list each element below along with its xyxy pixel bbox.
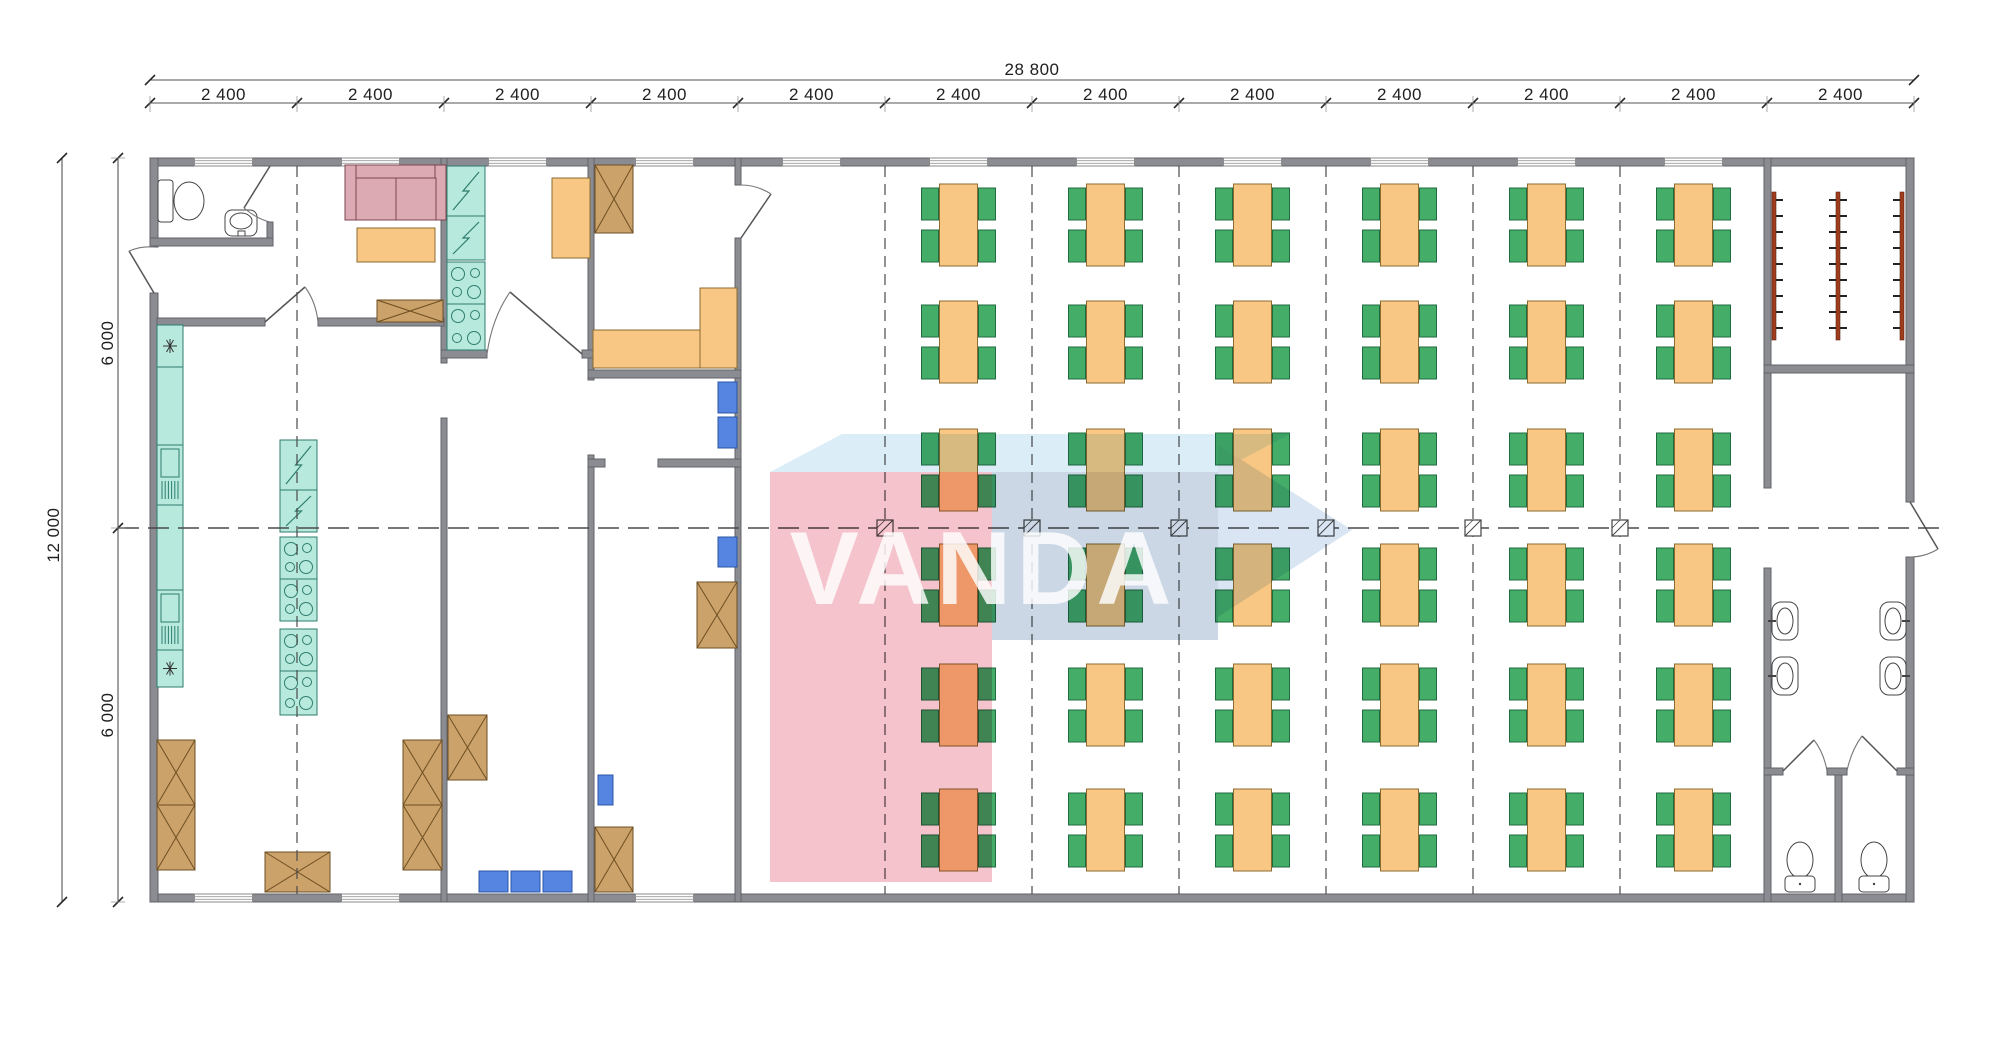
dining-table (1069, 184, 1143, 266)
dining-table (1510, 544, 1584, 626)
dim-top-segment-label: 2 400 (331, 85, 411, 105)
dim-top-segment-label: 2 400 (625, 85, 705, 105)
dining-table (1510, 429, 1584, 511)
dining-table (1657, 664, 1731, 746)
dining-table (1657, 429, 1731, 511)
dining-table (1657, 301, 1731, 383)
dining-table (1657, 789, 1731, 871)
dining-table (1363, 544, 1437, 626)
dim-left-segment-label: 6 000 (98, 293, 118, 393)
dim-top-segment-label: 2 400 (919, 85, 999, 105)
dining-table (922, 184, 996, 266)
dining-table (1363, 429, 1437, 511)
dim-top-segment-label: 2 400 (1654, 85, 1734, 105)
dining-table (1363, 301, 1437, 383)
watermark-text: VANDA (789, 511, 1176, 627)
dim-top-segment-label: 2 400 (1360, 85, 1440, 105)
dim-left-segment-label: 6 000 (98, 665, 118, 765)
dim-top-segment-label: 2 400 (1507, 85, 1587, 105)
dim-top-segment-label: 2 400 (478, 85, 558, 105)
dining-table (1363, 184, 1437, 266)
dim-top-segment-label: 2 400 (1213, 85, 1293, 105)
dining-table (922, 301, 996, 383)
dining-table (1216, 184, 1290, 266)
dim-top-segment-label: 2 400 (184, 85, 264, 105)
floorplan-drawing: VANDA (0, 0, 2000, 1041)
dining-table (1216, 301, 1290, 383)
dining-table (1363, 789, 1437, 871)
dining-table (1069, 789, 1143, 871)
dining-table (1657, 184, 1731, 266)
dim-top-segment-label: 2 400 (1801, 85, 1881, 105)
dim-top-segment-label: 2 400 (1066, 85, 1146, 105)
dim-left-total-label: 12 000 (44, 473, 64, 597)
sofa (345, 165, 446, 220)
dim-top-segment-label: 2 400 (772, 85, 852, 105)
dining-table (1510, 664, 1584, 746)
dining-table (1657, 544, 1731, 626)
dining-table (1216, 789, 1290, 871)
floorplan-canvas: VANDA 28 800 12 000 2 4002 4002 4002 400… (0, 0, 2000, 1041)
dining-table (1069, 664, 1143, 746)
dining-table (1069, 301, 1143, 383)
kitchen-equipment-group (157, 166, 485, 715)
dining-table (1510, 184, 1584, 266)
dining-table (1216, 664, 1290, 746)
dining-table (1363, 664, 1437, 746)
coat-rack-group (1772, 192, 1904, 340)
dim-top-total-label: 28 800 (972, 60, 1092, 80)
dining-table (1510, 301, 1584, 383)
dining-table (1510, 789, 1584, 871)
